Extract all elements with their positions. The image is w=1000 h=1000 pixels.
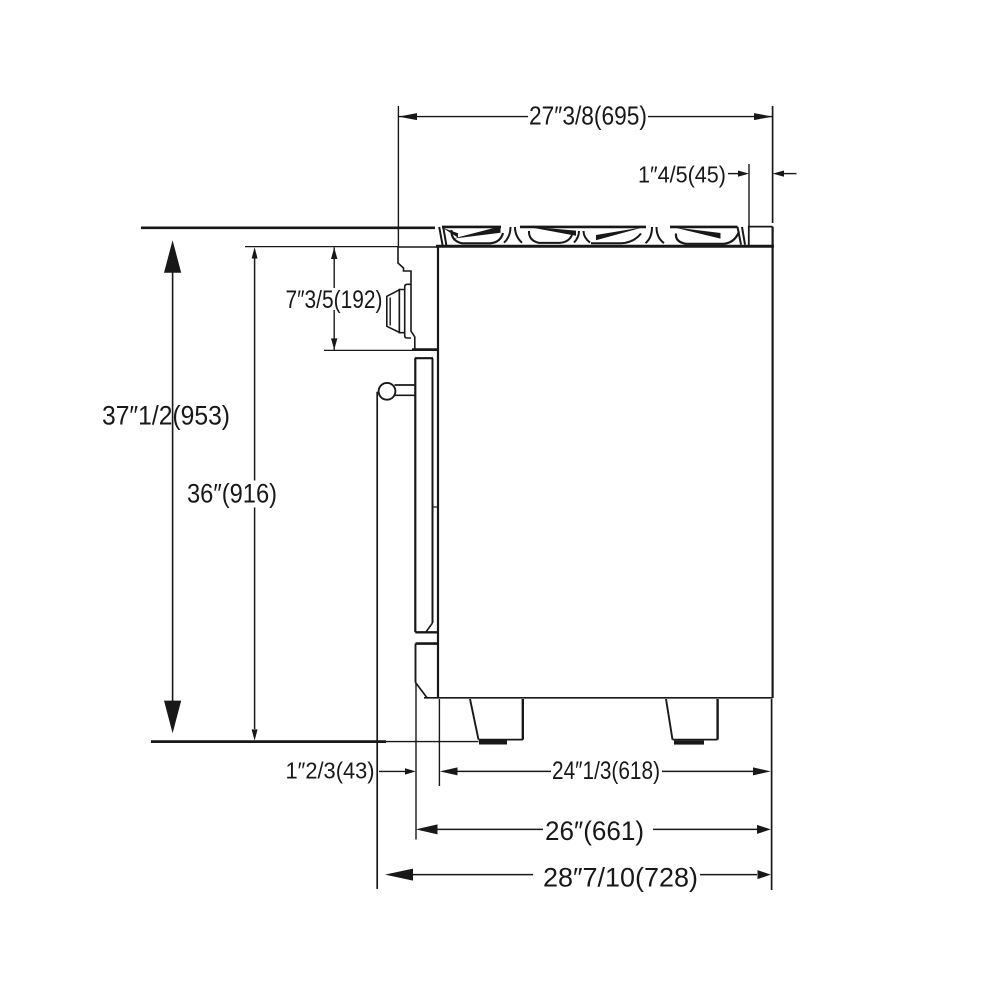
svg-text:1″4/5(45): 1″4/5(45) xyxy=(638,162,726,188)
svg-text:24″1/3(618): 24″1/3(618) xyxy=(552,757,660,785)
svg-text:28″7/10(728): 28″7/10(728) xyxy=(543,862,698,892)
svg-text:7″3/5(192): 7″3/5(192) xyxy=(286,286,383,314)
svg-text:27″3/8(695): 27″3/8(695) xyxy=(529,101,647,131)
svg-text:26″(661): 26″(661) xyxy=(545,816,644,846)
svg-text:37″1/2(953): 37″1/2(953) xyxy=(102,401,230,431)
svg-text:1″2/3(43): 1″2/3(43) xyxy=(286,757,375,783)
svg-text:36″(916): 36″(916) xyxy=(187,479,277,509)
